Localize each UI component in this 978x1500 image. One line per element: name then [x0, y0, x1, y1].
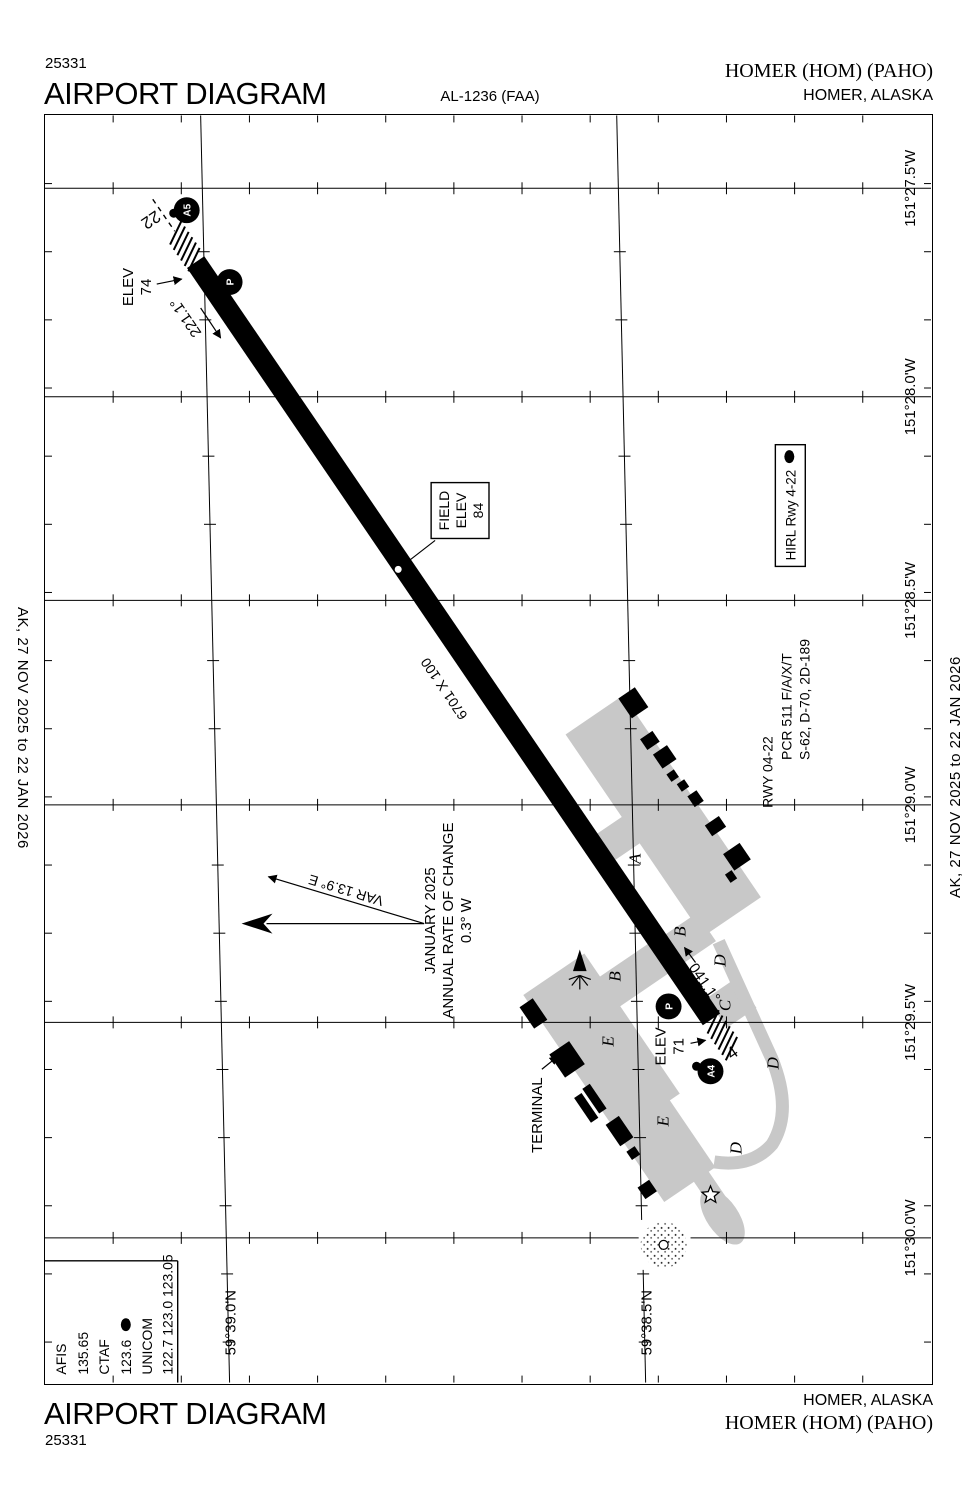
airport-name-bottom: HOMER (HOM) (PAHO): [725, 1412, 933, 1435]
elev-22-arrow: [157, 279, 182, 284]
stipple-area: [641, 1222, 687, 1268]
svg-text:A5: A5: [183, 203, 194, 216]
chart-svg: 22 4 221.1° 041.1° 6701 X 100 ELEV 74 EL…: [45, 115, 931, 1383]
variation-date: JANUARY 2025: [422, 867, 439, 974]
chart-id-top: 25331: [45, 55, 87, 72]
comm-box: AFIS 135.65 CTAF 123.6 L UNICOM 122.7 12…: [45, 1254, 178, 1382]
variation-rate-value: 0.3° W: [458, 897, 475, 943]
field-elev-value: 84: [470, 503, 486, 519]
elev-4-label: ELEV: [653, 1027, 670, 1065]
airport-city-top: HOMER, ALASKA: [803, 87, 933, 105]
field-elev-leader: [404, 540, 435, 564]
page-title: AIRPORT DIAGRAM: [44, 76, 326, 112]
ctaf-pcl-letter: L: [121, 1318, 131, 1324]
effective-dates-right: AK, 27 NOV 2025 to 22 JAN 2026: [947, 656, 964, 898]
ctaf-frequency: 123.6: [118, 1339, 134, 1374]
taxiway-letter-b2: B: [606, 971, 625, 981]
elev-4-arrow: [691, 1040, 706, 1043]
afis-frequency: 135.65: [75, 1332, 91, 1375]
taxiway-letter-d3: D: [726, 1142, 745, 1155]
terminal-label: TERMINAL: [529, 1077, 546, 1153]
field-elev-box: FIELD ELEV 84: [404, 483, 489, 565]
elev-4-value: 71: [671, 1038, 688, 1055]
field-elev-line1: FIELD: [436, 491, 452, 531]
elev-22-label: ELEV: [120, 268, 137, 306]
taxiway-letter-d1: D: [710, 954, 729, 967]
northeast-apron: [566, 695, 761, 936]
longitude-label: 151°29.0'W: [902, 765, 919, 843]
taxiway-letter-a: A: [626, 853, 645, 865]
footer-title: AIRPORT DIAGRAM: [44, 1396, 326, 1432]
taxiway-circle-p-north: P: [217, 269, 243, 295]
hirl-text: HIRL Rwy 4-22: [783, 470, 798, 561]
unicom-label: UNICOM: [139, 1318, 155, 1375]
hirl-pcl-letter: L: [784, 450, 794, 456]
airport-city-bottom: HOMER, ALASKA: [803, 1392, 933, 1410]
unicom-frequency: 122.7 123.0 123.05: [160, 1254, 176, 1375]
taxiway-letter-d2: D: [763, 1057, 782, 1070]
elev-22-group: ELEV 74: [120, 268, 182, 306]
taxiway-circle-p-south: P: [656, 993, 682, 1019]
variation-rate-label: ANNUAL RATE OF CHANGE: [440, 823, 457, 1019]
runway-data-line1: RWY 04-22: [759, 736, 775, 808]
longitude-labels: 151°27.5'W 151°28.0'W 151°28.5'W 151°29.…: [902, 149, 919, 1277]
elev-4-group: ELEV 71: [653, 1027, 706, 1065]
airport-diagram-page: { "header": { "chart_id": "25331", "titl…: [0, 0, 978, 1500]
runway-data-line2: PCR 511 F/A/X/T: [778, 653, 794, 760]
taxiway-circle-a5: A5: [169, 197, 199, 223]
chart-frame: 22 4 221.1° 041.1° 6701 X 100 ELEV 74 EL…: [44, 114, 933, 1385]
variation-group: VAR 13.9° E JANUARY 2025 ANNUAL RATE OF …: [242, 823, 475, 1019]
ctaf-label: CTAF: [96, 1339, 112, 1374]
chart-id-bottom: 25331: [45, 1432, 87, 1449]
runway-data-block: RWY 04-22 PCR 511 F/A/X/T S-62, D-70, 2D…: [759, 639, 812, 808]
afis-label: AFIS: [53, 1344, 69, 1375]
latitude-label: 59°39.0'N: [223, 1290, 240, 1355]
airport-name-top: HOMER (HOM) (PAHO): [725, 60, 933, 83]
field-elev-point: [395, 566, 402, 573]
taxiway-letter-b1: B: [671, 926, 690, 936]
longitude-label: 151°29.5'W: [902, 983, 919, 1061]
variation-value: VAR 13.9° E: [306, 871, 385, 909]
hirl-box: HIRL Rwy 4-22 L: [775, 445, 805, 567]
latitude-labels: 59°39.0'N 59°38.5'N: [223, 1290, 656, 1355]
latitude-label: 59°38.5'N: [639, 1290, 656, 1355]
longitude-label: 151°28.5'W: [902, 561, 919, 639]
field-elev-line2: ELEV: [453, 492, 469, 528]
taxiway-letter-c: C: [715, 999, 734, 1011]
taxiway-apron-network: [415, 695, 915, 1265]
effective-dates-left: AK, 27 NOV 2025 to 22 JAN 2026: [14, 607, 31, 849]
svg-text:P: P: [226, 279, 237, 286]
procedure-id: AL-1236 (FAA): [355, 88, 625, 105]
taxiway-circle-a4: A4: [692, 1058, 723, 1084]
elev-22-value: 74: [138, 279, 155, 296]
longitude-label: 151°27.5'W: [902, 149, 919, 227]
taxiway-letter-e2: E: [654, 1115, 673, 1127]
taxiway-letter-e1: E: [599, 1036, 618, 1048]
runway-data-line3: S-62, D-70, 2D-189: [796, 639, 812, 760]
svg-text:A4: A4: [706, 1064, 717, 1077]
svg-text:P: P: [665, 1003, 676, 1010]
longitude-label: 151°30.0'W: [902, 1199, 919, 1277]
longitude-label: 151°28.0'W: [902, 357, 919, 435]
runway-heading-22: 221.1°: [167, 295, 205, 340]
